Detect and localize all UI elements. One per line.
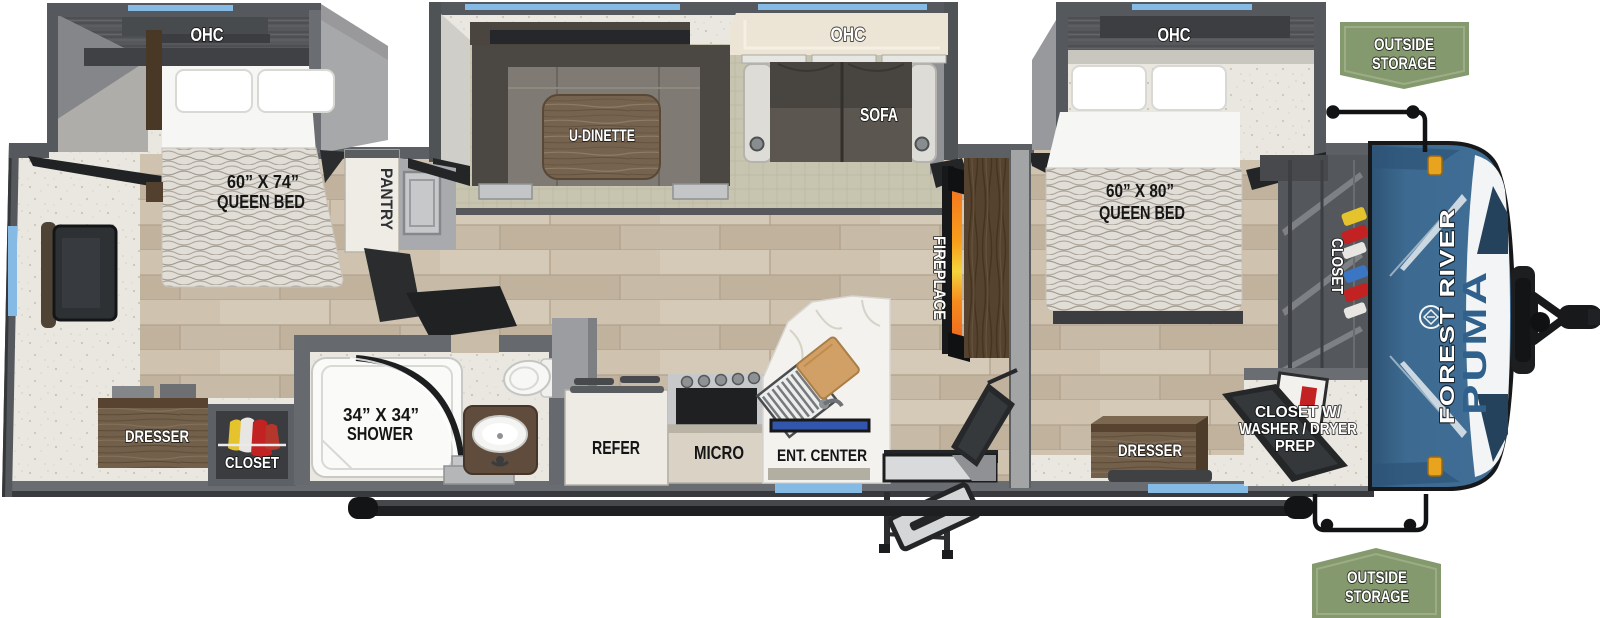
svg-text:DRESSER: DRESSER [125,427,189,446]
svg-text:STORAGE: STORAGE [1345,587,1409,606]
svg-text:PUMA: PUMA [1456,269,1493,415]
svg-text:OUTSIDE: OUTSIDE [1374,35,1434,54]
svg-text:60” X 80”: 60” X 80” [1106,181,1174,201]
svg-text:CLOSET: CLOSET [1328,238,1345,294]
svg-text:OHC: OHC [191,25,224,45]
svg-text:DRESSER: DRESSER [1118,441,1182,460]
svg-text:ENT. CENTER: ENT. CENTER [777,446,867,465]
svg-text:QUEEN BED: QUEEN BED [217,192,305,212]
svg-text:CLOSET W/: CLOSET W/ [1255,404,1342,421]
svg-text:MICRO: MICRO [694,443,744,463]
svg-text:SOFA: SOFA [860,105,898,125]
svg-text:STORAGE: STORAGE [1372,54,1436,73]
svg-text:OHC: OHC [1158,25,1191,45]
svg-text:QUEEN BED: QUEEN BED [1099,203,1185,223]
svg-text:WASHER / DRYER: WASHER / DRYER [1239,421,1357,438]
svg-text:PANTRY: PANTRY [377,168,396,231]
svg-text:FIREPLACE: FIREPLACE [930,236,949,320]
svg-text:CLOSET: CLOSET [225,455,279,472]
svg-text:SHOWER: SHOWER [347,424,413,444]
svg-text:OHC: OHC [831,25,866,46]
svg-text:60” X 74”: 60” X 74” [227,172,299,192]
svg-text:OUTSIDE: OUTSIDE [1347,568,1407,587]
svg-text:PREP: PREP [1275,438,1315,455]
svg-text:REFER: REFER [592,438,640,458]
svg-text:34” X 34”: 34” X 34” [343,405,419,425]
svg-text:U-DINETTE: U-DINETTE [569,126,635,145]
